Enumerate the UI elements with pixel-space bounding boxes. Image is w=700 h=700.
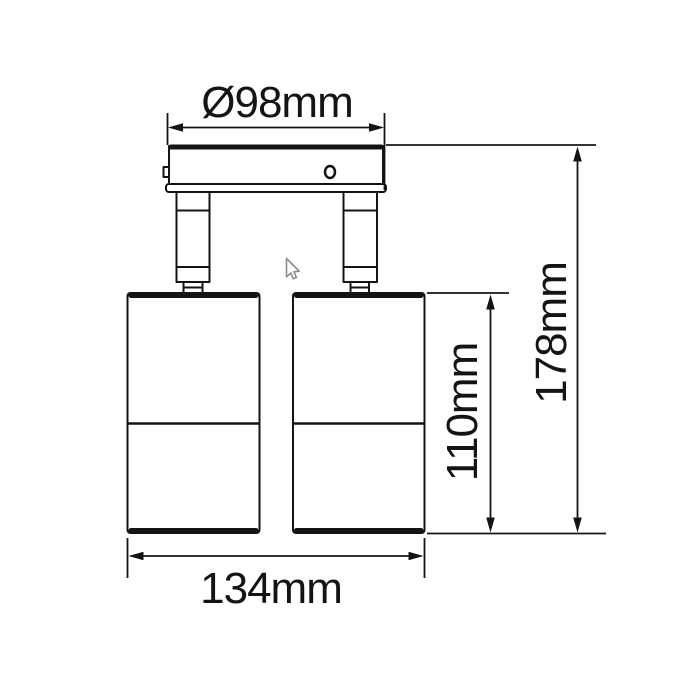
right-lamp-cylinder: [293, 293, 425, 533]
technical-drawing-page: Ø98mm 134mm 178mm 110mm: [0, 0, 700, 700]
overall-width-label: 134mm: [200, 564, 342, 613]
arrowhead-left-icon: [168, 123, 183, 132]
right-stem: [344, 192, 378, 293]
overall-height-label: 178mm: [527, 262, 576, 404]
canopy-body: [169, 146, 383, 184]
mouse-cursor-icon: [287, 259, 300, 279]
right-cylinder-outline: [293, 293, 425, 533]
canopy-lip: [166, 184, 386, 192]
left-lamp-cylinder: [128, 293, 260, 533]
canopy-side-tab: [164, 167, 170, 177]
left-stem: [177, 192, 210, 293]
arrowhead-up-icon: [573, 147, 582, 162]
left-stem-body: [177, 192, 210, 282]
canopy-diameter-label: Ø98mm: [201, 78, 352, 127]
body-height-label: 110mm: [438, 343, 487, 481]
spotlight-dimension-drawing: Ø98mm 134mm 178mm 110mm: [0, 0, 700, 700]
ceiling-canopy: [164, 146, 387, 192]
arrowhead-up-icon: [486, 295, 495, 310]
arrowhead-down-icon: [486, 518, 495, 533]
left-cylinder-outline: [128, 293, 260, 533]
canopy-screw-hole: [325, 166, 335, 178]
right-stem-body: [344, 192, 378, 282]
arrowhead-right-icon: [369, 123, 384, 132]
arrowhead-down-icon: [573, 518, 582, 533]
arrowhead-right-icon: [409, 552, 424, 561]
arrowhead-left-icon: [129, 552, 144, 561]
